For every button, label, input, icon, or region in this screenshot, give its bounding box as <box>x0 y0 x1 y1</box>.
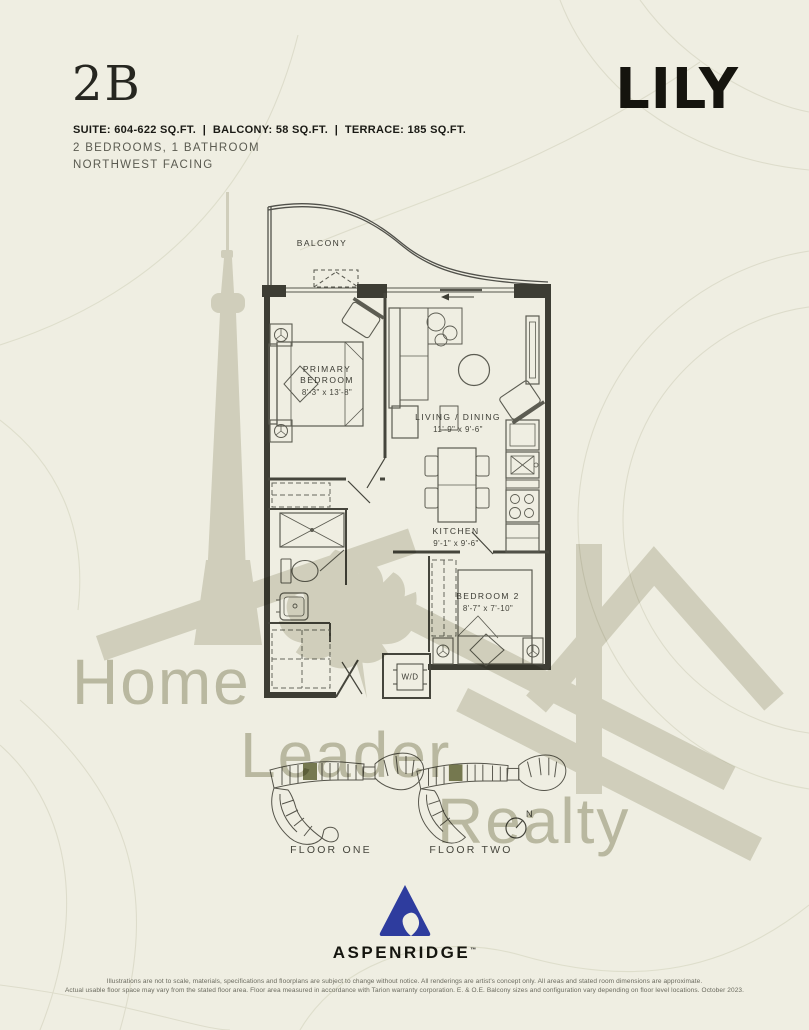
room-label-kitchen: KITCHEN 9'-1" x 9'-6" <box>411 526 501 549</box>
kitchen-appliances <box>506 420 539 552</box>
compass <box>506 818 526 838</box>
interior-walls <box>268 293 549 698</box>
room-dims-living-dining: 11'-9" x 9'-6" <box>403 424 513 435</box>
room-label-primary-bedroom: PRIMARY BEDROOM 8'-3" x 13'-8" <box>289 364 365 398</box>
brand-logo: LILY <box>615 56 739 122</box>
compass-label: N <box>526 809 533 819</box>
disclaimer-line-2: Actual usable floor space may vary from … <box>0 987 809 994</box>
room-label-living-dining: LIVING / DINING 11'-9" x 9'-6" <box>403 412 513 435</box>
keyplan-floor-two-label: FLOOR TWO <box>429 844 512 856</box>
slider-arrow <box>441 294 474 301</box>
keyplan-floor-one-label: FLOOR ONE <box>290 844 372 856</box>
room-label-bedroom-2: BEDROOM 2 8'-7" x 7'-10" <box>443 591 533 614</box>
suite-specs: SUITE: 604-622 SQ.FT. | BALCONY: 58 SQ.F… <box>73 124 466 136</box>
room-dims-bedroom-2: 8'-7" x 7'-10" <box>443 603 533 614</box>
laundry-label: W/D <box>401 673 418 682</box>
unit-code: 2B <box>72 56 142 112</box>
room-label-balcony: BALCONY <box>297 238 347 249</box>
floorplan-drawing <box>0 0 809 1030</box>
keyplan-floor-two <box>417 755 566 843</box>
trademark-symbol: ™ <box>470 947 476 953</box>
disclaimer-line-1: Illustrations are not to scale, material… <box>0 978 809 985</box>
developer-logo-icon <box>380 885 431 936</box>
keyplan-floor-one <box>270 753 424 844</box>
unit-facing: NORTHWEST FACING <box>73 159 214 171</box>
windows <box>286 288 514 292</box>
brochure-page: BALCONY PRIMARY BEDROOM 8'-3" x 13'-8" L… <box>0 0 809 1030</box>
room-dims-primary-bedroom: 8'-3" x 13'-8" <box>289 387 365 398</box>
bathroom-fixtures <box>276 513 344 620</box>
bedroom2-furniture <box>433 570 543 666</box>
unit-config: 2 BEDROOMS, 1 BATHROOM <box>73 142 260 154</box>
balcony-divider <box>314 270 358 287</box>
room-dims-kitchen: 9'-1" x 9'-6" <box>411 538 501 549</box>
developer-name: ASPENRIDGE™ <box>0 943 809 963</box>
